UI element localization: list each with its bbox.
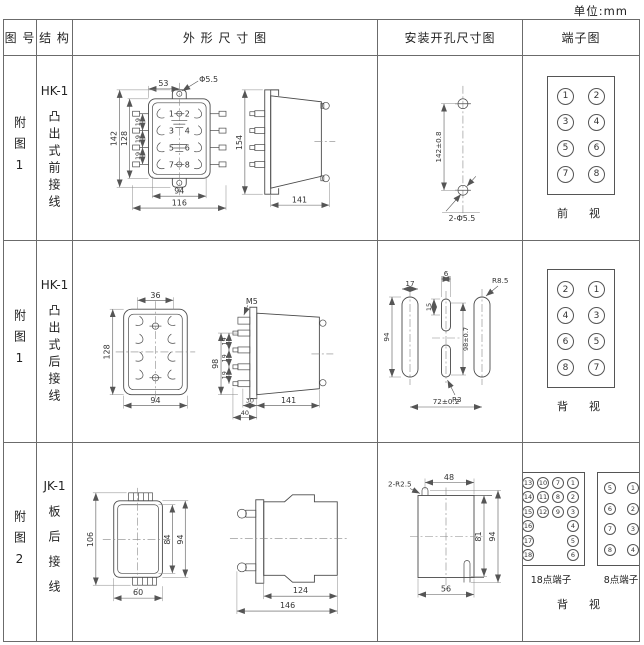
- dim-side-d1: 124: [293, 586, 308, 595]
- terminal-box-8pt: 5 1 6 2 7 3 8 4: [597, 472, 639, 566]
- terminal-pin: 7: [588, 359, 605, 376]
- dim-pitch: 19: [134, 152, 142, 160]
- dim-top-w: 48: [444, 473, 454, 482]
- terminal-pin: 8: [552, 491, 564, 503]
- dim-body-h: 94: [176, 534, 185, 544]
- dim-pitch: 19: [134, 135, 142, 143]
- side-view: [230, 495, 347, 583]
- cell-row1-terminal: 1 3 5 7 2 4 6 8 前 视: [523, 56, 639, 241]
- dim-inner-h: 84: [163, 534, 172, 544]
- dim-pitch: 19: [220, 371, 228, 379]
- terminal-pin: 8: [604, 544, 616, 556]
- unit-label: 单位:mm: [574, 3, 628, 19]
- dim-top-width: 36: [150, 291, 160, 300]
- dim-side-h: 154: [235, 135, 244, 150]
- dim-hole-dia: Φ5.5: [199, 75, 218, 84]
- terminal-pin: 4: [588, 114, 605, 131]
- terminal-box-18pt: 13 10 7 1 14 11 8 2 15 12 9 3 16 4 17: [523, 472, 585, 566]
- model-label: JK-1: [43, 479, 65, 493]
- cell-row1-figure: 附图1: [4, 56, 37, 241]
- terminal-pin: 18: [523, 549, 534, 561]
- pin-number: 8: [185, 160, 190, 169]
- cell-row3-structure: JK-1 板后接线: [37, 443, 73, 641]
- structure-label: 凸出式后接线: [46, 304, 63, 406]
- model-label: HK-1: [41, 84, 69, 98]
- terminal-pin: 11: [537, 491, 549, 503]
- pin-number: 3: [169, 127, 174, 136]
- terminal-view-caption: 背 视: [557, 596, 605, 612]
- terminal-pin: 13: [523, 477, 534, 489]
- figure-label: 附图2: [12, 510, 29, 575]
- terminal-pin: 5: [604, 482, 616, 494]
- dim-overall-h: 142: [110, 131, 119, 146]
- model-label: HK-1: [41, 278, 69, 292]
- terminal-pin: 12: [537, 506, 549, 518]
- dim-overall-h: 106: [86, 532, 95, 547]
- terminal-view-caption: 前 视: [557, 205, 605, 221]
- pin-number: 7: [169, 160, 174, 169]
- jk1-mounting-hole-drawing: 2-R2.5 48 81 94 56: [378, 443, 522, 641]
- dim-d1: 30: [246, 397, 254, 405]
- cell-row3-outline: 106 84 94 60: [73, 443, 378, 641]
- header-figure: 图 号: [4, 20, 37, 56]
- terminal-pin: 2: [588, 88, 605, 105]
- terminal-pin: 4: [557, 307, 574, 324]
- hk1-rear-mounting-hole-drawing: 17 6 15 94 98±0.7 R8.5 R3 72±0.2: [378, 241, 522, 442]
- dim-h-dist: 72±0.2: [433, 397, 460, 406]
- dim-hole-dist: 142±0.8: [434, 131, 443, 162]
- header-outline: 外 形 尺 寸 图: [73, 20, 378, 56]
- dim-pitch: 19: [220, 337, 228, 345]
- cell-row2-figure: 附图1: [4, 241, 37, 443]
- terminal-pin: 3: [567, 506, 579, 518]
- terminal-col-left: 2 4 6 8: [557, 281, 574, 376]
- terminal-pin: 14: [523, 491, 534, 503]
- terminal-pin: 16: [523, 520, 534, 532]
- terminal-pin: 1: [627, 482, 639, 494]
- terminal-pin: 17: [523, 535, 534, 547]
- terminal-pin: 6: [567, 549, 579, 561]
- structure-label: 凸出式前接线: [46, 110, 63, 212]
- terminal-pin: 7: [557, 166, 574, 183]
- dim-v-dist: 98±0.7: [462, 327, 470, 351]
- terminal-pin: 5: [588, 333, 605, 350]
- cell-row1-outline: 1 2 3 4 5 6 7 8 53 Φ5.5 142: [73, 56, 378, 241]
- front-view: 1 2 3 4 5 6 7 8: [133, 83, 226, 196]
- side-view: [233, 307, 333, 398]
- hk1-front-mounting-hole-drawing: 142±0.8 2-Φ5.5: [378, 56, 522, 240]
- cell-row1-structure: HK-1 凸出式前接线: [37, 56, 73, 241]
- terminal-box: 1 3 5 7 2 4 6 8: [547, 76, 615, 195]
- dim-body-w: 60: [133, 588, 143, 597]
- terminal-box: 2 4 6 8 1 3 5 7: [547, 269, 615, 388]
- cell-row3-terminal: 13 10 7 1 14 11 8 2 15 12 9 3 16 4 17: [523, 443, 639, 641]
- terminal-pin: 8: [588, 166, 605, 183]
- rear-view: [116, 301, 195, 402]
- terminal-pin: 3: [557, 114, 574, 131]
- pin-number: 6: [185, 143, 190, 152]
- dim-inner-w: 94: [174, 187, 184, 196]
- dim-r-big: R8.5: [492, 276, 508, 285]
- terminal-boxes: 13 10 7 1 14 11 8 2 15 12 9 3 16 4 17: [523, 472, 639, 586]
- terminal-pin: 7: [604, 523, 616, 535]
- dim-stud: M5: [246, 297, 258, 306]
- side-view-dimensions: 154 141: [235, 90, 329, 207]
- pin-number: 5: [169, 143, 174, 152]
- header-terminal: 端子图: [523, 20, 639, 56]
- dim-notch: 2-R2.5: [388, 480, 412, 489]
- terminal-pin: 6: [604, 503, 616, 515]
- cell-row2-terminal: 2 4 6 8 1 3 5 7 背 视: [523, 241, 639, 443]
- terminal-pin: 5: [567, 535, 579, 547]
- dim-inner-h: 81: [474, 531, 483, 541]
- dim-top-width: 53: [158, 79, 168, 88]
- side-view-dimensions: M5 98 19 19 19 30 141 40: [211, 297, 319, 419]
- rear-view-dimensions: 36 128 94: [103, 291, 187, 409]
- dim-small-h: 15: [425, 303, 433, 311]
- pin-number: 1: [169, 110, 174, 119]
- terminal-pin: 10: [537, 477, 549, 489]
- terminal-pin: 1: [567, 477, 579, 489]
- dim-overall-h: 94: [488, 531, 497, 541]
- terminal-col-right: 2 4 6 8: [588, 88, 605, 183]
- spec-table: 图 号 结 构 外 形 尺 寸 图 安装开孔尺寸图 端子图 附图1 HK-1 凸…: [3, 19, 640, 642]
- terminal-col-right: 1 3 5 7: [588, 281, 605, 376]
- pin-number: 2: [185, 110, 190, 119]
- dim-pitch: 19: [220, 354, 228, 362]
- terminal-8pt-group: 5 1 6 2 7 3 8 4 8点端子: [597, 472, 639, 586]
- mounting-dimensions: 2-R2.5 48 81 94 56: [388, 473, 501, 598]
- header-structure: 结 构: [37, 20, 73, 56]
- terminal-pin: 5: [557, 140, 574, 157]
- terminal-pin: 6: [588, 140, 605, 157]
- dim-slot-w: 17: [405, 279, 414, 288]
- dim-group-h: 98: [211, 359, 220, 369]
- terminal-18pt-group: 13 10 7 1 14 11 8 2 15 12 9 3 16 4 17: [523, 472, 585, 586]
- mounting-dimensions: 17 6 15 94 98±0.7 R8.5 R3 72±0.2: [382, 269, 508, 407]
- terminal-pin: 2: [627, 503, 639, 515]
- cell-row2-mounting: 17 6 15 94 98±0.7 R8.5 R3 72±0.2: [378, 241, 523, 443]
- mounting-slots: [402, 289, 490, 385]
- cell-row3-figure: 附图2: [4, 443, 37, 641]
- terminal-pin: 3: [627, 523, 639, 535]
- terminal-8pt-label: 8点端子: [604, 572, 639, 586]
- dim-body-w: 94: [150, 396, 160, 405]
- front-view-dimensions: 106 84 94 60: [86, 493, 188, 601]
- terminal-pin: 4: [567, 520, 579, 532]
- dim-d2: 40: [241, 409, 249, 417]
- jk1-outline-drawing: 106 84 94 60: [73, 443, 377, 641]
- dim-hole-spec: 2-Φ5.5: [449, 214, 476, 223]
- cell-row1-mounting: 142±0.8 2-Φ5.5: [378, 56, 523, 241]
- dim-slot-h: 94: [382, 332, 391, 342]
- terminal-pin: 1: [557, 88, 574, 105]
- cell-row2-outline: 36 128 94: [73, 241, 378, 443]
- terminal-pin: 15: [523, 506, 534, 518]
- terminal-18pt-label: 18点端子: [531, 572, 572, 586]
- terminal-col-left: 1 3 5 7: [557, 88, 574, 183]
- dim-body-h: 128: [120, 131, 129, 146]
- dim-side-d: 141: [281, 396, 296, 405]
- dim-overall-w: 116: [172, 199, 187, 208]
- cell-row2-structure: HK-1 凸出式后接线: [37, 241, 73, 443]
- terminal-pin: 2: [567, 491, 579, 503]
- dim-pitch: 19: [134, 118, 142, 126]
- terminal-pin: 9: [552, 506, 564, 518]
- hk1-rear-wiring-outline-drawing: 36 128 94: [73, 241, 377, 442]
- pin-number: 4: [185, 127, 190, 136]
- dim-bottom-w: 56: [441, 585, 451, 594]
- side-view: [250, 90, 335, 194]
- mounting-dimensions: 142±0.8 2-Φ5.5: [434, 104, 480, 223]
- terminal-pin: 8: [557, 359, 574, 376]
- dim-body-h: 128: [103, 344, 112, 359]
- structure-label: 板后接线: [46, 505, 63, 605]
- dim-small-w: 6: [444, 269, 449, 278]
- terminal-view-caption: 背 视: [557, 398, 605, 414]
- terminal-pin: 1: [588, 281, 605, 298]
- terminal-pin: 6: [557, 333, 574, 350]
- terminal-pin: 3: [588, 307, 605, 324]
- hk1-front-wiring-outline-drawing: 1 2 3 4 5 6 7 8 53 Φ5.5 142: [73, 56, 377, 240]
- terminal-pin: 2: [557, 281, 574, 298]
- dim-side-d: 141: [292, 196, 307, 205]
- cell-row3-mounting: 2-R2.5 48 81 94 56: [378, 443, 523, 641]
- dim-side-d2: 146: [280, 601, 295, 610]
- header-mounting: 安装开孔尺寸图: [378, 20, 523, 56]
- figure-label: 附图1: [12, 309, 29, 374]
- terminal-pin: 4: [627, 544, 639, 556]
- terminal-pin: 7: [552, 477, 564, 489]
- figure-label: 附图1: [12, 116, 29, 181]
